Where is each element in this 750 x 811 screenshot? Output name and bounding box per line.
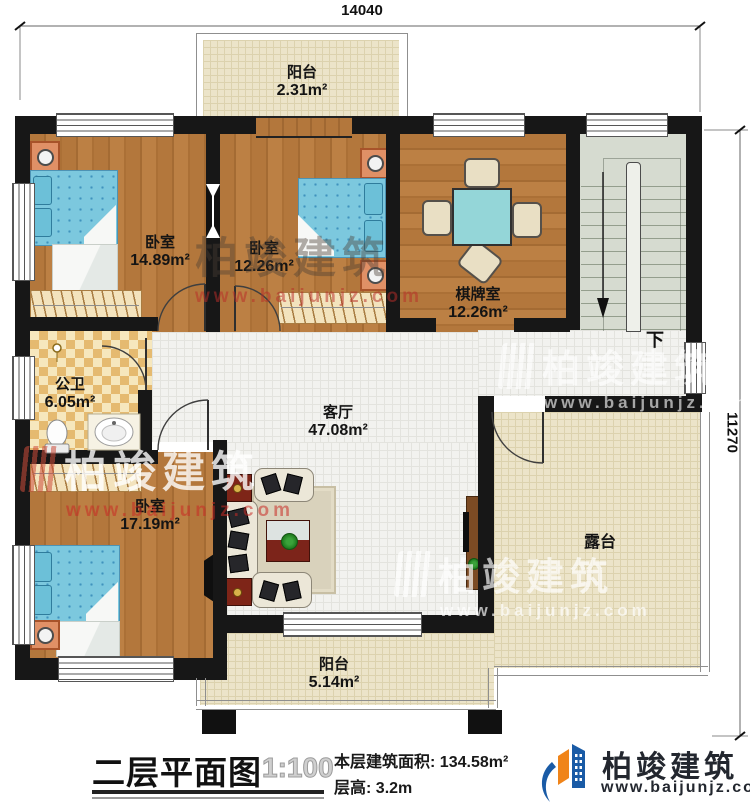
room-label-bathroom: 公卫 6.05m² xyxy=(16,376,124,413)
room-label-bedroom-top-left: 卧室 14.89m² xyxy=(104,234,216,271)
room-label-chess-room: 棋牌室 12.26m² xyxy=(422,286,534,323)
floor-area-text: 本层建筑面积: 134.58m² xyxy=(334,748,508,772)
dimension-top: 14040 xyxy=(330,2,394,19)
room-label-bedroom-bottom-left: 卧室 17.19m² xyxy=(94,498,206,535)
room-label-living-room: 客厅 47.08m² xyxy=(282,404,394,441)
title-underline xyxy=(92,797,324,799)
stairs-down-label: 下 xyxy=(646,326,664,352)
brand-logo-icon xyxy=(536,740,596,804)
dimension-right: 11270 xyxy=(724,403,741,463)
drawing-scale: 1:100 xyxy=(262,752,334,784)
room-label-terrace: 露台 xyxy=(544,534,656,553)
page-title: 二层平面图 xyxy=(92,746,262,794)
title-underline xyxy=(92,790,324,794)
room-label-balcony-bottom: 阳台 5.14m² xyxy=(278,656,390,693)
room-label-balcony-top: 阳台 2.31m² xyxy=(246,64,358,101)
room-label-bedroom-top-middle: 卧室 12.26m² xyxy=(208,240,320,277)
brand-url: www.baijunjz.com xyxy=(601,779,750,797)
floor-plan: 阳台 2.31m² 卧室 14.89m² 卧室 12.26m² 棋牌室 12.2… xyxy=(0,0,750,811)
floor-height-text: 层高: 3.2m xyxy=(334,774,412,798)
